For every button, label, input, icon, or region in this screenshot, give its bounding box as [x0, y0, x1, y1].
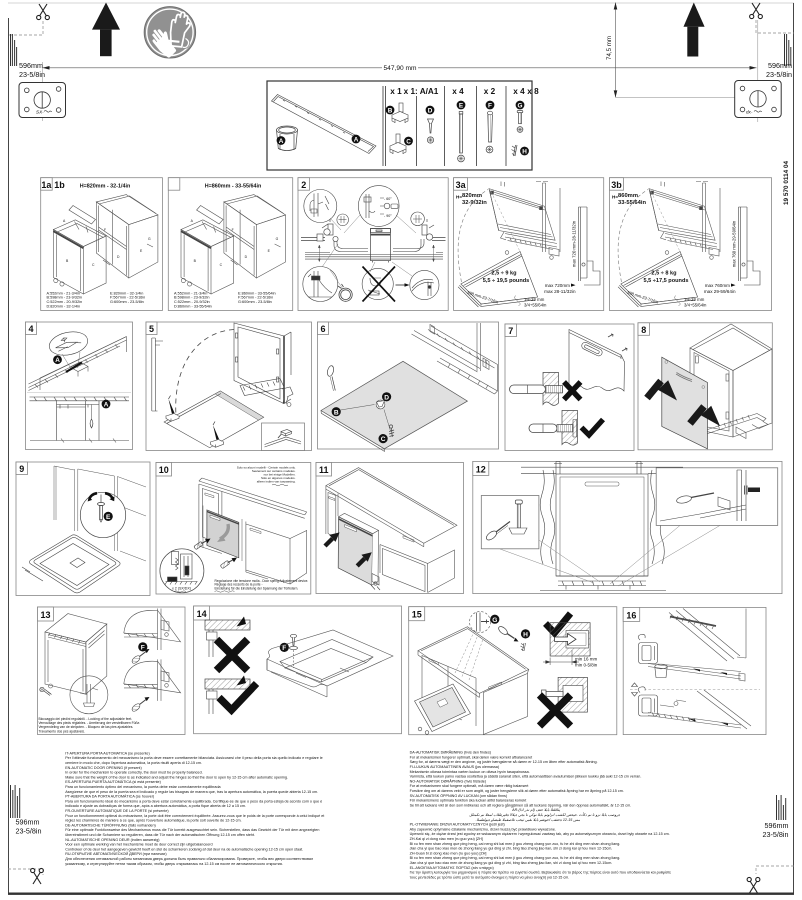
svg-text:E: E	[459, 103, 464, 110]
svg-text:Asegúrese de que el peso de la: Asegúrese de que el peso de la puerta se…	[65, 790, 318, 794]
svg-text:23-5/8in: 23-5/8in	[19, 70, 45, 79]
svg-text:SV-AUTOMATISK ÖPPNING AV LUCKA: SV-AUTOMATISK ÖPPNING AV LUCKAN (om såda…	[410, 794, 508, 798]
svg-text:Per l'ottimale funzionamento d: Per l'ottimale funzionamento del meccani…	[65, 756, 323, 760]
svg-text:ZH-Guan bi zi dong xiao men (r: ZH-Guan bi zi dong xiao men (ru guo you)…	[410, 851, 487, 855]
svg-text:G:600mm - 23-5/8in: G:600mm - 23-5/8in	[238, 300, 272, 304]
svg-text:11: 11	[319, 465, 329, 475]
svg-text:14: 14	[197, 609, 207, 619]
svg-text:PL-OTWIERANIE DRZWI AUTOMATYCZ: PL-OTWIERANIE DRZWI AUTOMATYCZNYCH (jeśl…	[410, 823, 505, 827]
svg-text:x 2: x 2	[484, 87, 496, 96]
svg-text:13: 13	[40, 610, 50, 620]
svg-text:3b: 3b	[611, 180, 622, 190]
svg-text:DA-AUTOMATISK DØRÅBNING (hvis: DA-AUTOMATISK DØRÅBNING (hvis den findes…	[410, 750, 491, 755]
svg-text:5,5 ÷17,5 pounds: 5,5 ÷17,5 pounds	[643, 278, 688, 284]
svg-text:E:860mm - 33-55/64in: E:860mm - 33-55/64in	[238, 291, 276, 295]
svg-text:H: H	[522, 149, 527, 156]
svg-text:33-55/64in: 33-55/64in	[618, 200, 646, 206]
svg-text:23-5/8in: 23-5/8in	[763, 830, 789, 839]
svg-text:C:522mm - 20-9/32in: C:522mm - 20-9/32in	[174, 300, 210, 304]
svg-text:übereinstimmt und die Scharnie: übereinstimmt und die Scharniere so regu…	[65, 833, 255, 837]
svg-text:B: B	[388, 108, 393, 115]
svg-text:3a: 3a	[456, 180, 467, 190]
svg-text:19÷22 mm: 19÷22 mm	[684, 297, 705, 302]
svg-text:16: 16	[626, 610, 636, 620]
svg-text:In order for the mechanism to: In order for the mechanism to operate co…	[65, 771, 202, 775]
svg-text:F: F	[141, 645, 145, 652]
svg-text:x 1: x 1	[390, 87, 402, 96]
svg-text:F: F	[104, 228, 106, 232]
svg-text:A: A	[55, 357, 60, 364]
svg-text:4: 4	[28, 324, 33, 334]
svg-text:max 720mm: max 720mm	[545, 283, 570, 288]
svg-text:x 8: x 8	[527, 87, 539, 96]
svg-text:DE-AUTOMATISCHE TÜRÖFFNUNG (fa: DE-AUTOMATISCHE TÜRÖFFNUNG (falls vorhan…	[65, 823, 156, 827]
svg-text:NL-AUTOMATISCHE OPENING DEUR (: NL-AUTOMATISCHE OPENING DEUR (indien aan…	[65, 838, 159, 842]
svg-text:H=820mm - 32-1/4in: H=820mm - 32-1/4in	[80, 184, 131, 190]
svg-text:указанному, и отрегулируйте пе: указанному, и отрегулируйте петли таким …	[65, 862, 283, 866]
svg-text:19÷22 mm: 19÷22 mm	[524, 297, 545, 302]
svg-text:C:522mm - 20-9/32in: C:522mm - 20-9/32in	[47, 300, 83, 304]
svg-text:D:820mm - 32-1/4in: D:820mm - 32-1/4in	[47, 305, 81, 309]
svg-text:C: C	[406, 139, 411, 146]
svg-text:547,90 mm: 547,90 mm	[384, 65, 417, 72]
svg-text:Mekanismin oikeaa toimintaa va: Mekanismin oikeaa toimintaa varten luuku…	[410, 770, 530, 774]
svg-text:x 4: x 4	[513, 87, 525, 96]
svg-text:FR-OUVERTURE AUTOMATIQUE DE LA: FR-OUVERTURE AUTOMATIQUE DE LA PORTE (si…	[65, 809, 168, 813]
svg-text:cerniere in modo che, dopo l'a: cerniere in modo che, dopo l'apertura au…	[65, 761, 202, 765]
svg-text:F:567mm - 22-5/16in: F:567mm - 22-5/16in	[110, 296, 145, 300]
svg-text:RU-ОТКРЫТИЕ АВТОМАТИЧЕСКОЙ ДВЕ: RU-ОТКРЫТИЕ АВТОМАТИЧЕСКОЙ ДВЕРИ (при на…	[65, 852, 166, 856]
svg-text:Para um funcionamento ideal do: Para um funcionamento ideal do mecanismo…	[65, 799, 322, 803]
svg-text:F: F	[488, 103, 492, 110]
svg-text:Make sure that the weight of t: Make sure that the weight of the door is…	[65, 775, 288, 779]
svg-text:réglez les charnières de maniè: réglez les charnières de manière à ce qu…	[65, 819, 241, 823]
svg-text:A:552mm - 21-3/4in: A:552mm - 21-3/4in	[47, 291, 80, 295]
svg-text:Για την άριστη λειτουργία του: Για την άριστη λειτουργία του μηχανισμού…	[410, 871, 672, 875]
svg-text:Для обеспечения оптимальной ра: Для обеспечения оптимальной работы механ…	[65, 857, 313, 861]
svg-text:596mm: 596mm	[16, 818, 40, 827]
svg-text:F:567mm - 22-5/16in: F:567mm - 22-5/16in	[238, 296, 273, 300]
svg-text:D: D	[384, 394, 389, 401]
svg-text:FI-LUUKUN AUTOMAATTINEN AVAUS: FI-LUUKUN AUTOMAATTINEN AVAUS (jos olema…	[410, 765, 499, 769]
svg-text:indicado e ajuste as dobradiça: indicado e ajuste as dobradiças de forma…	[65, 804, 246, 808]
svg-text:596mm: 596mm	[19, 61, 43, 70]
svg-text:74,5 mm: 74,5 mm	[606, 36, 613, 60]
svg-text:2,5 ÷ 8 kg: 2,5 ÷ 8 kg	[651, 271, 677, 277]
svg-text:G: G	[518, 103, 523, 110]
svg-text:min 16 mm: min 16 mm	[575, 657, 598, 662]
svg-text:E: E	[106, 514, 111, 521]
svg-text:7: 7	[508, 326, 513, 336]
svg-text:5: 5	[149, 324, 154, 334]
svg-text:AR-(ام نذر اذا) يئاقلتلا بابلا: AR-(ام نذر اذا) يئاقلتلا بابلا حتف	[511, 808, 560, 812]
svg-text:D:860mm - 33-55/64in: D:860mm - 33-55/64in	[174, 305, 212, 309]
svg-text:- 90°: - 90°	[384, 214, 392, 218]
svg-text:Para un funcionamiento óptimo: Para un funcionamiento óptimo del mecani…	[65, 785, 221, 789]
svg-text:3/4÷55/64in: 3/4÷55/64in	[524, 302, 547, 307]
svg-text:min 0-5/8in: min 0-5/8in	[575, 663, 598, 668]
svg-text:Forsikre deg om at dørens vekt: Forsikre deg om at dørens vekt er som an…	[410, 789, 624, 793]
svg-text:23-5/8in: 23-5/8in	[16, 826, 42, 835]
svg-text:max 760 mm-29-59/64in: max 760 mm-29-59/64in	[732, 220, 737, 267]
svg-text:max 28-11/32in: max 28-11/32in	[544, 289, 576, 294]
svg-text:596mm: 596mm	[765, 821, 789, 830]
svg-text:8: 8	[641, 325, 646, 335]
svg-text:ZH-Kai qi zi dong xiao men (ru: ZH-Kai qi zi dong xiao men (ru guo you) …	[410, 837, 483, 841]
svg-text:Travamento dos pés ajustáveis.: Travamento dos pés ajustáveis.	[39, 729, 86, 733]
svg-text:9: 9	[19, 464, 24, 474]
svg-text:För mekanismens optimala funkt: För mekanismens optimala funktion ska lu…	[410, 799, 527, 803]
svg-text:EN-AUTOMATIC DOOR OPENING (if: EN-AUTOMATIC DOOR OPENING (if present)	[65, 766, 142, 770]
svg-text:H: H	[523, 632, 528, 639]
svg-text:max 720 mm-28-11/32in: max 720 mm-28-11/32in	[572, 220, 577, 267]
svg-text:.مس 15-12 ةحتفب احوتفم بابلا ى: .مس 15-12 ةحتفب احوتفم بابلا ىقبي ثيحب ت…	[476, 818, 580, 822]
svg-text:Aby zapewnić optymalne działan: Aby zapewnić optymalne działanie mechani…	[410, 827, 556, 831]
svg-text:x 2 (SX/DX): x 2 (SX/DX)	[172, 587, 191, 591]
svg-text:max 760mm: max 760mm	[705, 283, 730, 288]
svg-text:IT-APERTURA PORTA AUTOMATICA (: IT-APERTURA PORTA AUTOMATICA (se present…	[65, 751, 150, 755]
svg-text:23-5/8in: 23-5/8in	[766, 70, 792, 79]
svg-text:For at mekanismen fungerer opt: For at mekanismen fungerer optimalt, ska…	[410, 755, 533, 759]
svg-text:B:598mm - 23-9/32in: B:598mm - 23-9/32in	[174, 296, 209, 300]
svg-text:Einstellung für die Einstellun: Einstellung für die Einstellung der Span…	[215, 586, 299, 590]
svg-text:D: D	[428, 108, 433, 115]
svg-text:Se till att luckans vikt är de: Se till att luckans vikt är den som indi…	[410, 803, 632, 807]
svg-text:Voor een optimale werking van: Voor een optimale werking van het mechan…	[65, 843, 212, 847]
svg-text:B:598mm - 23-9/32in: B:598mm - 23-9/32in	[47, 296, 82, 300]
svg-text:PT-ABERTURA DA PORTA AUTOMÁTIC: PT-ABERTURA DA PORTA AUTOMÁTICA (se houv…	[65, 795, 154, 799]
svg-text:G:600mm - 23-5/8in: G:600mm - 23-5/8in	[110, 300, 144, 304]
svg-text:Pour un fonctionnement optimal: Pour un fonctionnement optimal du mécani…	[65, 814, 324, 818]
svg-text:H=860mm - 33-55/64in: H=860mm - 33-55/64in	[205, 184, 261, 190]
svg-text:A: A	[354, 137, 359, 144]
svg-text:5,5 ÷ 19,5 pounds: 5,5 ÷ 19,5 pounds	[483, 278, 530, 284]
svg-text:Controleer of de deur het aang: Controleer of de deur het aangegeven gew…	[65, 847, 303, 851]
svg-text:Bi xu fen men shan zheng que p: Bi xu fen men shan zheng que ping heng, …	[410, 856, 621, 860]
svg-text:596mm: 596mm	[768, 61, 792, 70]
svg-text:x 1: A/A1: x 1: A/A1	[404, 87, 439, 96]
svg-text:ES-APERTURA PUERTA AUTOMÁTICA: ES-APERTURA PUERTA AUTOMÁTICA (si está p…	[65, 780, 161, 784]
svg-text:Für eine optimale Funktionswei: Für eine optimale Funktionsweise des Mec…	[65, 828, 319, 832]
svg-text:6: 6	[320, 324, 325, 334]
svg-text:A:552mm - 21-3/4in: A:552mm - 21-3/4in	[174, 291, 207, 295]
svg-text:max 29-59/64in: max 29-59/64in	[704, 289, 736, 294]
svg-text:10: 10	[159, 465, 169, 475]
svg-text:SX-: SX-	[36, 110, 44, 115]
svg-text:2: 2	[301, 180, 306, 190]
svg-text:15: 15	[412, 610, 422, 620]
svg-text:860mm: 860mm	[618, 193, 638, 199]
svg-text:C: C	[381, 436, 386, 443]
svg-text:For at mekanismen skal fungere: For at mekanismen skal fungere optimalt,…	[410, 784, 529, 788]
svg-text:Varmista, että luukun paino va: Varmista, että luukun paino vastaa osoit…	[410, 775, 642, 779]
svg-text:1a: 1a	[41, 180, 52, 190]
svg-text:19 570 0114 04: 19 570 0114 04	[783, 160, 790, 205]
svg-text:E:820mm - 32-1/4in: E:820mm - 32-1/4in	[110, 291, 143, 295]
svg-text:τους μεντεσέδες με τρόπο ώστε: τους μεντεσέδες με τρόπο ώστε μετά το αυ…	[410, 875, 570, 879]
svg-text:- 60°: - 60°	[384, 197, 392, 201]
svg-text:Bi xu fen men shan zheng que p: Bi xu fen men shan zheng que ping heng, …	[410, 842, 621, 846]
svg-text:1b: 1b	[54, 180, 65, 190]
svg-text:A: A	[104, 402, 109, 409]
svg-text:NO-AUTOMATISK DØRÅPNING (hvis: NO-AUTOMATISK DØRÅPNING (hvis tilstede)	[410, 778, 487, 783]
svg-text:EL-ΑΝΟΙΓΜΑ ΑΥΤΟΜΑΤΗΣ ΠΟΡΤΑΣ (ε: EL-ΑΝΟΙΓΜΑ ΑΥΤΟΜΑΤΗΣ ΠΟΡΤΑΣ (εάν υπάρχει…	[410, 866, 494, 870]
svg-text:x 4: x 4	[452, 87, 464, 96]
svg-text:Upewnić się, że ciężar drzwi j: Upewnić się, że ciężar drzwi jest zgodny…	[410, 832, 670, 836]
svg-text:3/4÷55/64in: 3/4÷55/64in	[684, 302, 707, 307]
svg-text:2,5 ÷ 9 kg: 2,5 ÷ 9 kg	[491, 271, 517, 277]
svg-text:ةروصب بابلا نزو نا نم دكأت .حي: ةروصب بابلا نزو نا نم دكأت .حيحص لكشب ان…	[469, 812, 620, 817]
svg-text:G: G	[492, 617, 497, 624]
svg-text:dx-: dx-	[746, 110, 753, 115]
svg-text:Sørg for, at dørens vægt er de: Sørg for, at dørens vægt er den angivne,…	[410, 760, 598, 764]
svg-text:B: B	[334, 409, 339, 416]
svg-text:Jian cha yi que bao xiao men d: Jian cha yi que bao xiao men de zhong li…	[410, 861, 613, 865]
svg-text:A: A	[279, 138, 284, 145]
svg-text:Jian cha yi que bao xiao men d: Jian cha yi que bao xiao men de zhong li…	[410, 847, 613, 851]
svg-text:12: 12	[476, 464, 486, 474]
svg-text:alleen indien van toepassing.: alleen indien van toepassing.	[257, 480, 296, 484]
svg-text:F: F	[282, 645, 286, 652]
svg-text:G: G	[148, 237, 151, 241]
